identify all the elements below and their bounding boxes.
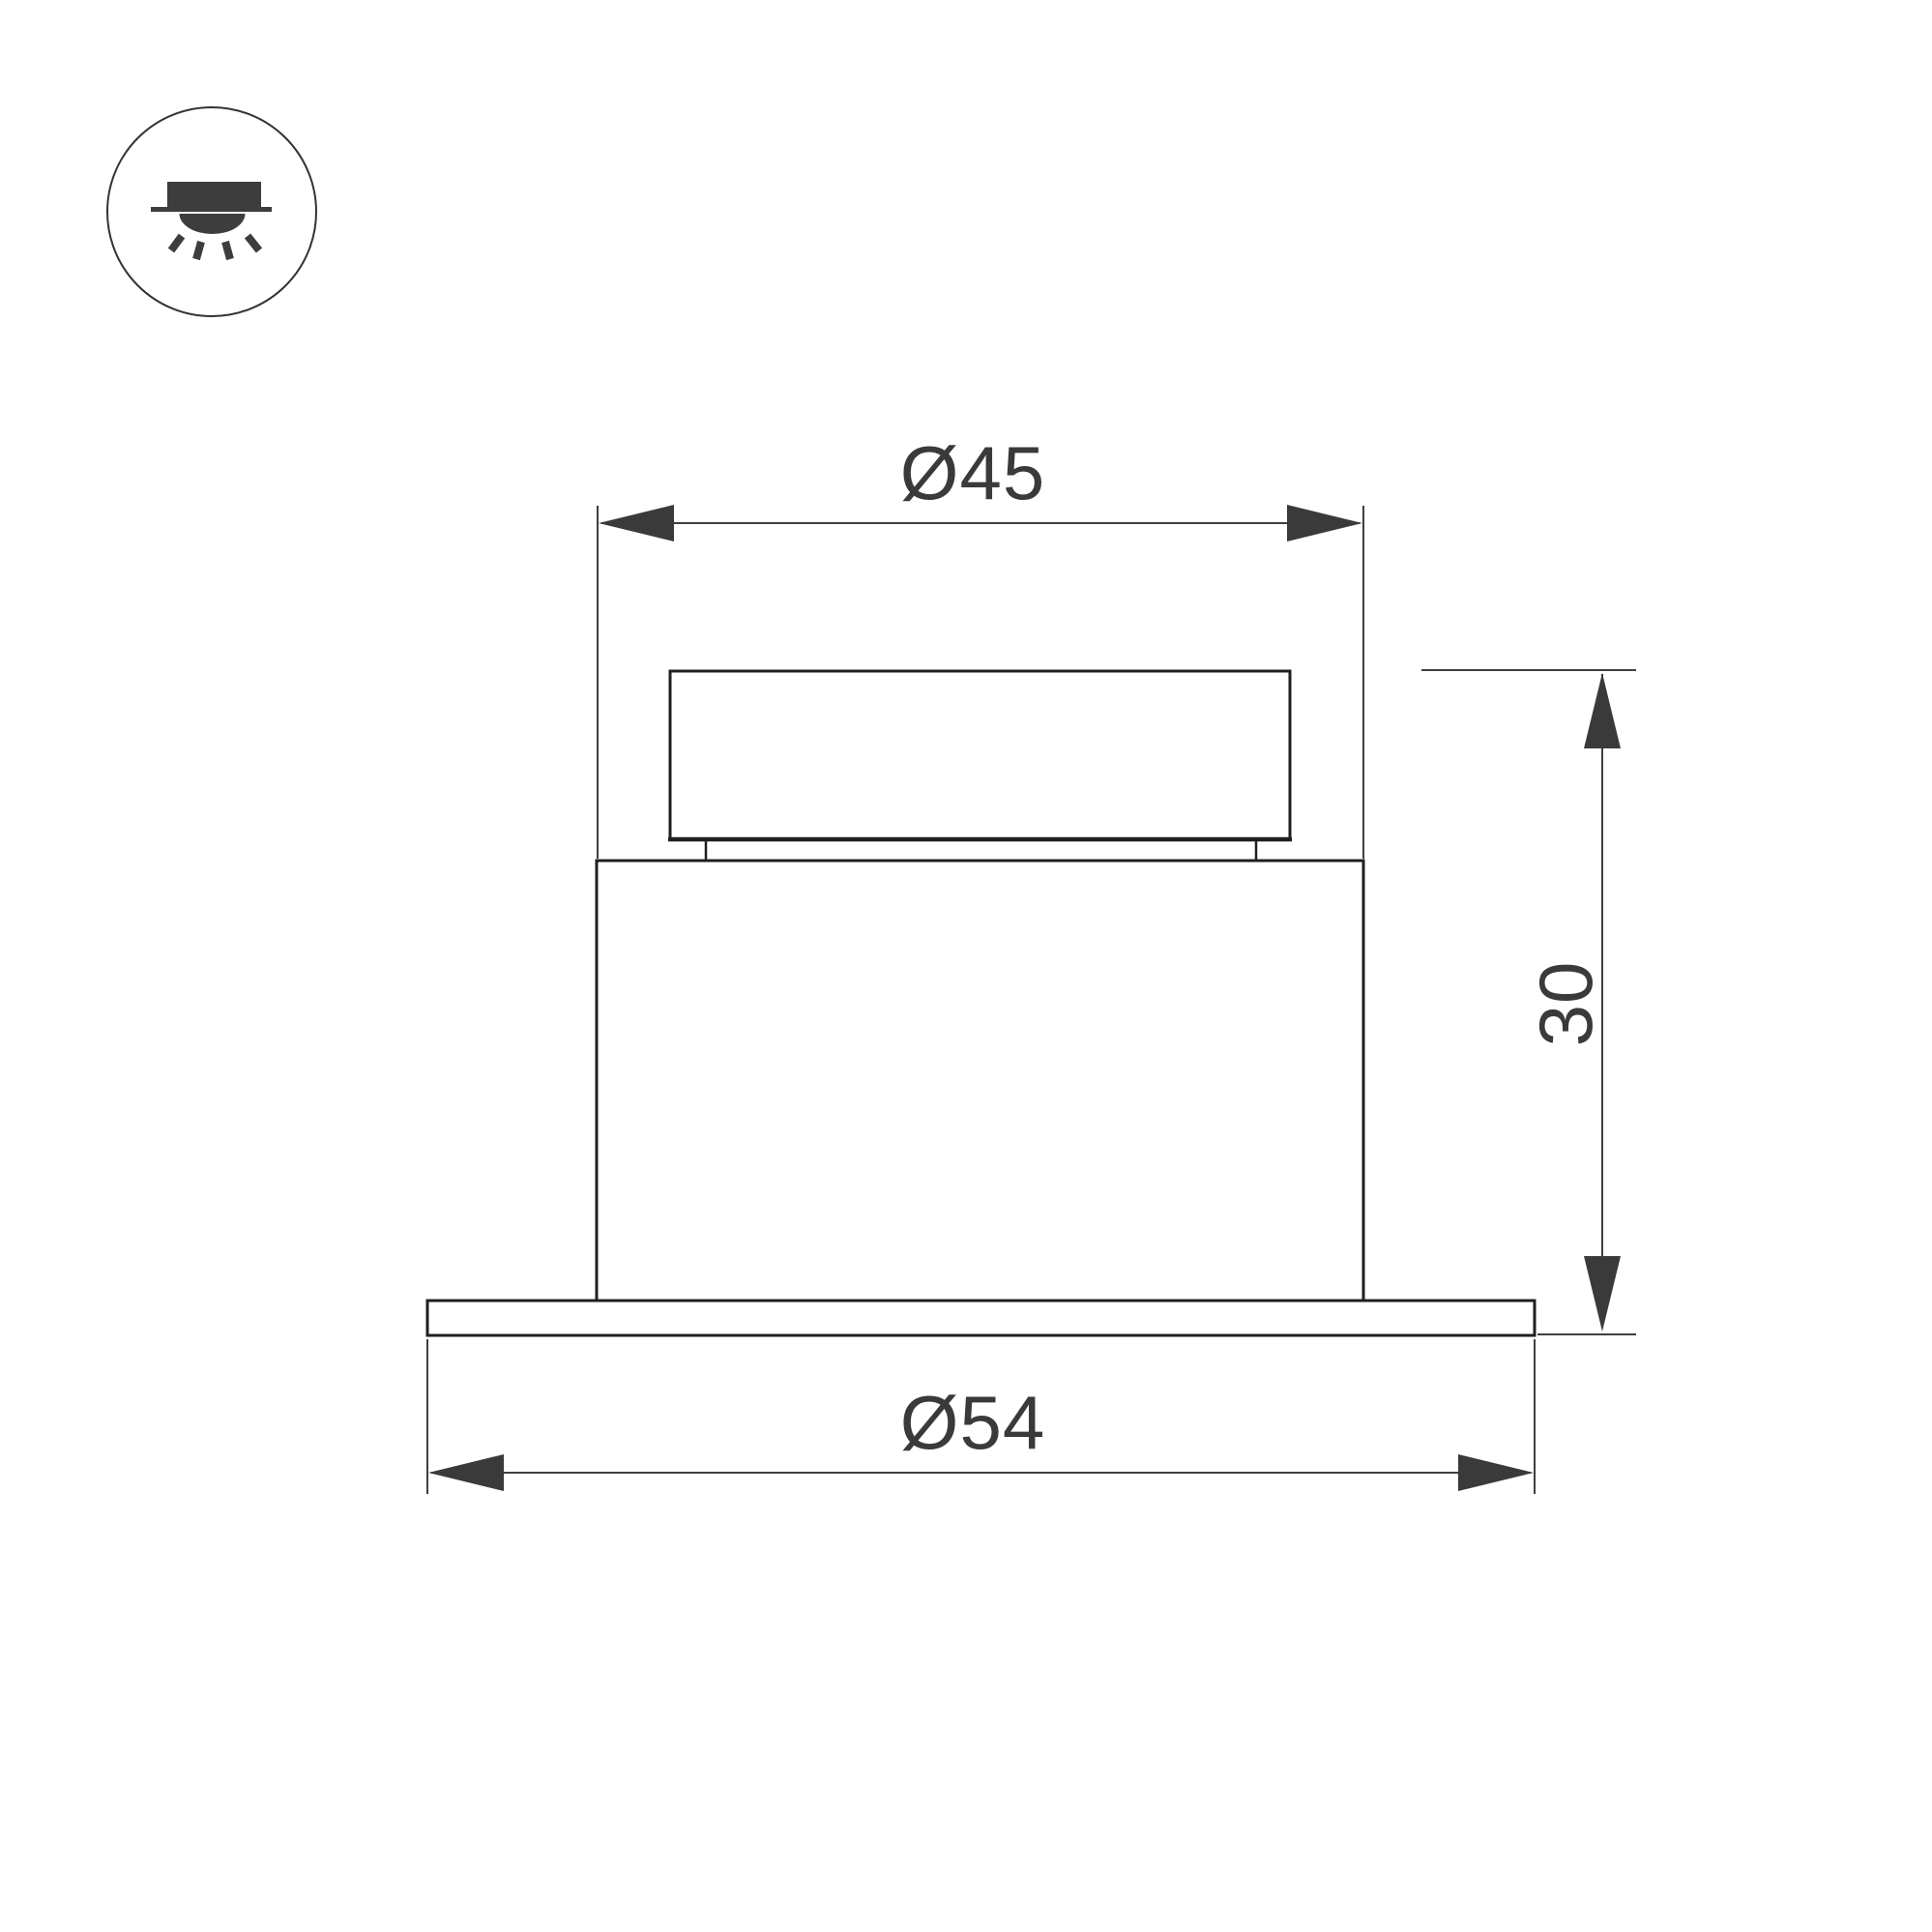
dimension-label-height: 30 xyxy=(1523,961,1608,1047)
fixture-front-view xyxy=(427,671,1535,1335)
technical-drawing-canvas: Ø45 Ø54 30 xyxy=(0,0,1932,1932)
icon-ray-3 xyxy=(225,242,230,259)
fixture-flange xyxy=(427,1301,1535,1335)
icon-ceiling-line xyxy=(151,207,272,212)
arrow-right-icon xyxy=(1458,1454,1534,1491)
dimension-label-flange-diameter: Ø54 xyxy=(900,1380,1045,1465)
dimension-label-body-diameter: Ø45 xyxy=(900,430,1045,515)
arrow-left-icon xyxy=(428,1454,504,1491)
arrow-left-icon xyxy=(599,505,674,542)
arrow-up-icon xyxy=(1584,673,1621,748)
icon-ray-2 xyxy=(196,242,201,259)
arrow-down-icon xyxy=(1584,1256,1621,1332)
fixture-upper-housing xyxy=(670,671,1290,839)
arrow-right-icon xyxy=(1287,505,1362,542)
fixture-main-body xyxy=(597,861,1363,1301)
dimension-height: 30 xyxy=(1421,670,1636,1334)
icon-lamp-housing xyxy=(167,182,261,208)
recessed-downlight-icon xyxy=(107,107,316,316)
dimension-flange-diameter: Ø54 xyxy=(427,1339,1535,1494)
dimension-body-diameter: Ø45 xyxy=(598,430,1363,859)
